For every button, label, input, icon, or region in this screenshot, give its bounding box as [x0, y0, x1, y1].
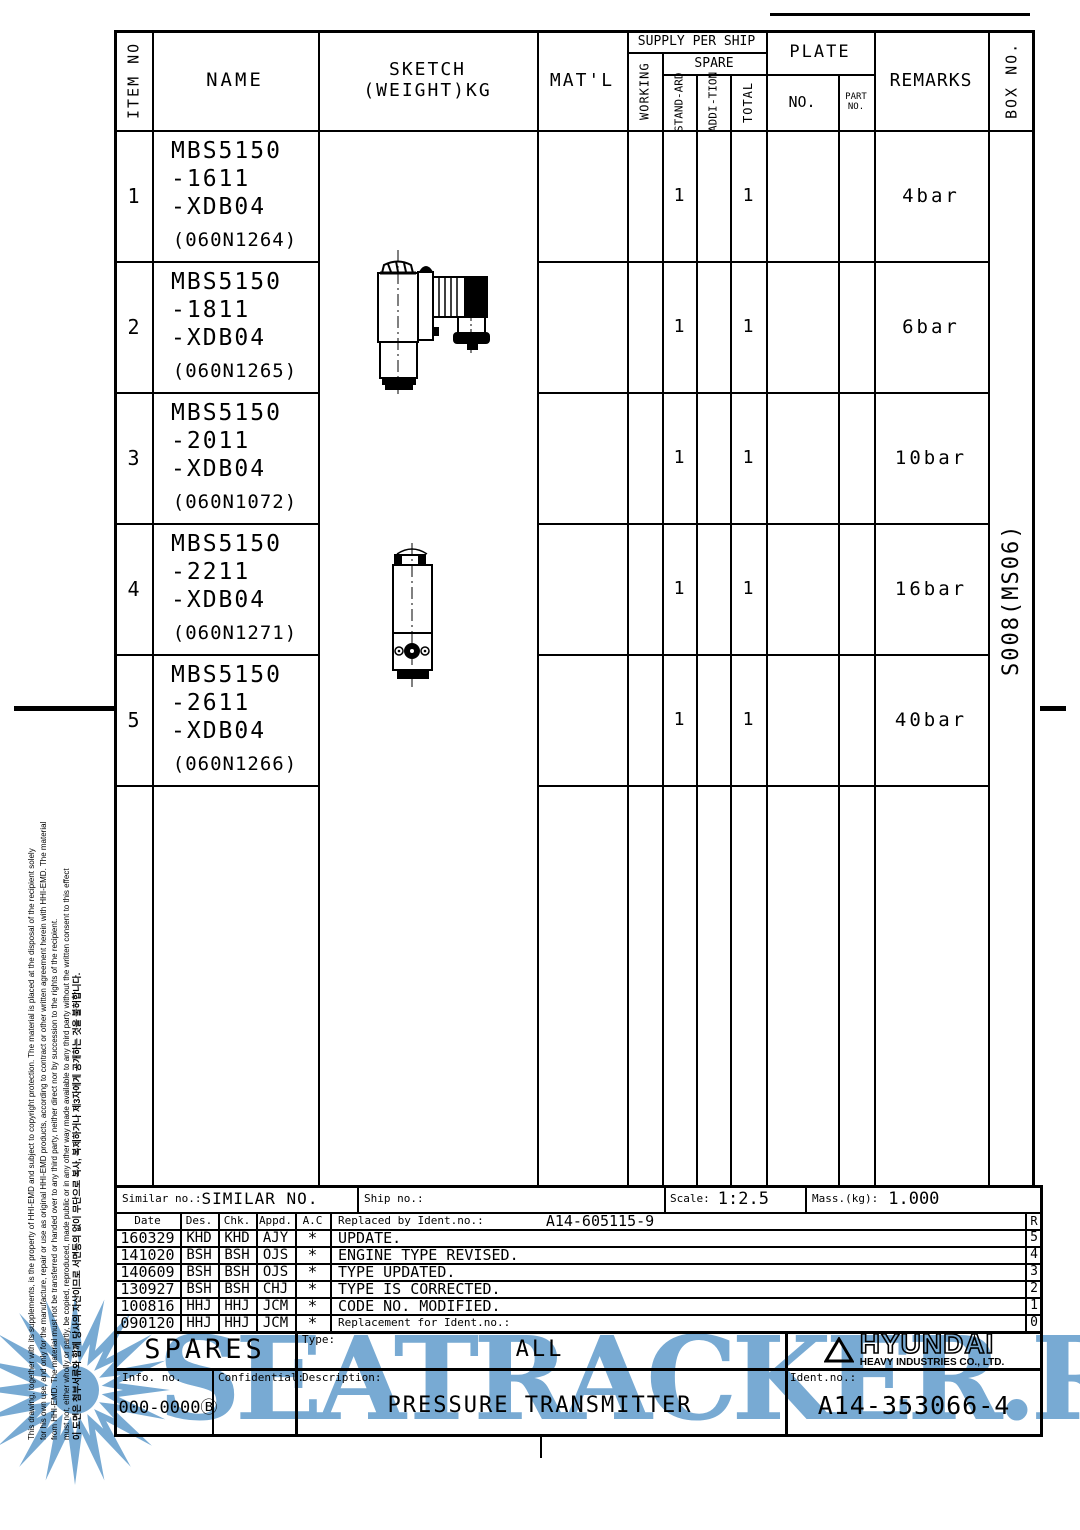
watermark-text: SEATRACKER.RU — [158, 1322, 1080, 1437]
name-line: -2211 — [171, 558, 299, 586]
remarks-value: 4bar — [874, 130, 988, 261]
col-header-working: WORKING — [627, 52, 662, 130]
rev-r: 2 — [1025, 1280, 1043, 1297]
col-header-total: TOTAL — [730, 74, 766, 130]
col-header-spare: SPARE — [662, 52, 766, 74]
item-no: 3 — [115, 392, 152, 523]
similar-no-cell: Similar no.:SIMILAR NO. — [122, 1185, 354, 1212]
name-line: MBS5150 — [171, 137, 299, 165]
grid-line — [537, 30, 539, 1185]
col-header-part-no: PART NO. — [838, 74, 874, 130]
rev-desc: ENGINE TYPE REVISED. — [338, 1246, 1018, 1263]
col-header-addition: ADDI -TION — [696, 74, 730, 130]
mass-value: 1.000 — [888, 1189, 939, 1209]
name-line: MBS5150 — [171, 268, 299, 296]
drawing-sheet: { "table": { "headers": { "item_no": "IT… — [0, 0, 1080, 1466]
addition-line2: -TION — [707, 72, 720, 105]
rev-desc: TYPE UPDATED. — [338, 1263, 1018, 1280]
name-line: -XDB04 — [171, 586, 299, 614]
item-no: 1 — [115, 130, 152, 261]
sketch-header-line1: SKETCH — [389, 59, 466, 80]
col-header-matl: MAT'L — [537, 30, 627, 130]
rev-header-ac: A.C — [295, 1212, 330, 1229]
part-code: (060N1072) — [173, 488, 297, 516]
col-header-plate-no: NO. — [766, 74, 838, 130]
name-line: MBS5150 — [171, 661, 299, 689]
fold-mark-right — [1040, 706, 1066, 711]
grid-line — [838, 74, 840, 1185]
qty-total: 1 — [730, 523, 766, 654]
sketch-header-line2: (WEIGHT)KG — [363, 80, 491, 101]
part-name: MBS5150 -2011 -XDB04 (060N1072) — [152, 392, 318, 523]
remarks-value: 6bar — [874, 261, 988, 392]
rev-desc: UPDATE. — [338, 1229, 1018, 1246]
part-name: MBS5150 -2611 -XDB04 (060N1266) — [152, 654, 318, 785]
rev-header-replaced-label: Replaced by Ident.no.: — [338, 1212, 528, 1229]
grid-line — [696, 74, 698, 1185]
addition-line1: ADDI — [707, 105, 720, 132]
rev-header-chk: Chk. — [218, 1212, 256, 1229]
qty-total: 1 — [730, 654, 766, 785]
rev-desc: TYPE IS CORRECTED. — [338, 1280, 1018, 1297]
rev-header-replaced-value: A14-605115-9 — [510, 1212, 690, 1229]
ship-no-label: Ship no.: — [364, 1192, 424, 1205]
rev-chk: BSH — [218, 1246, 256, 1263]
rev-ac: * — [295, 1229, 330, 1246]
similar-no-label: Similar no.: — [122, 1192, 201, 1205]
col-header-supply-per-ship: SUPPLY PER SHIP — [627, 30, 766, 52]
rev-appd: OJS — [256, 1263, 295, 1280]
qty-standard: 1 — [662, 654, 696, 785]
name-line: -2611 — [171, 689, 299, 717]
col-header-remarks: REMARKS — [874, 30, 988, 130]
name-line: -1611 — [171, 165, 299, 193]
standard-line1: STAND — [673, 99, 686, 132]
part-code: (060N1264) — [173, 226, 297, 254]
col-header-box-no: BOX NO. — [988, 30, 1035, 130]
name-line: -XDB04 — [171, 324, 299, 352]
part-name: MBS5150 -1811 -XDB04 (060N1265) — [152, 261, 318, 392]
scale-label: Scale: — [670, 1192, 710, 1205]
name-line: MBS5150 — [171, 530, 299, 558]
grid-line — [664, 1185, 666, 1212]
rev-appd: CHJ — [256, 1280, 295, 1297]
rev-header-r: R — [1025, 1212, 1043, 1229]
part-code: (060N1265) — [173, 357, 297, 385]
remarks-value: 10bar — [874, 392, 988, 523]
rev-header-appd: Appd. — [256, 1212, 295, 1229]
mass-label: Mass.(kg): — [812, 1192, 878, 1205]
col-header-standard: STAND -ARD — [662, 74, 696, 130]
mass-cell: Mass.(kg):1.000 — [812, 1185, 1037, 1212]
qty-standard: 1 — [662, 523, 696, 654]
grid-line — [766, 30, 768, 1185]
name-line: -XDB04 — [171, 455, 299, 483]
qty-standard: 1 — [662, 261, 696, 392]
part-name: MBS5150 -1611 -XDB04 (060N1264) — [152, 130, 318, 261]
part-name: MBS5150 -2211 -XDB04 (060N1271) — [152, 523, 318, 654]
top-right-rule — [770, 13, 1030, 16]
col-header-sketch: SKETCH (WEIGHT)KG — [318, 30, 537, 130]
rev-chk: KHD — [218, 1229, 256, 1246]
remarks-value: 40bar — [874, 654, 988, 785]
part-code: (060N1266) — [173, 750, 297, 778]
rev-ac: * — [295, 1280, 330, 1297]
qty-total: 1 — [730, 130, 766, 261]
scale-value: 1:2.5 — [718, 1189, 769, 1209]
standard-line2: -ARD — [673, 72, 686, 99]
rev-chk: BSH — [218, 1280, 256, 1297]
col-header-item-no: ITEM NO — [115, 30, 152, 130]
col-header-plate: PLATE — [766, 30, 874, 74]
qty-standard: 1 — [662, 392, 696, 523]
ship-no-cell: Ship no.: — [364, 1185, 564, 1212]
item-no: 5 — [115, 654, 152, 785]
item-no: 4 — [115, 523, 152, 654]
grid-line — [627, 30, 629, 1185]
name-line: -XDB04 — [171, 717, 299, 745]
rev-des: KHD — [180, 1229, 218, 1246]
name-line: MBS5150 — [171, 399, 299, 427]
rev-r: 4 — [1025, 1246, 1043, 1263]
qty-total: 1 — [730, 261, 766, 392]
part-no-line1: PART — [845, 92, 867, 102]
sketch-drawing — [318, 130, 537, 1185]
rev-appd: OJS — [256, 1246, 295, 1263]
qty-standard: 1 — [662, 130, 696, 261]
box-no-value: S008(MS06) — [988, 430, 1035, 770]
part-no-line2: NO. — [848, 102, 864, 112]
name-line: -1811 — [171, 296, 299, 324]
grid-line — [115, 785, 318, 787]
scale-cell: Scale:1:2.5 — [670, 1185, 803, 1212]
rev-r: 3 — [1025, 1263, 1043, 1280]
similar-no-value: SIMILAR NO. — [201, 1189, 318, 1208]
grid-line — [805, 1185, 807, 1212]
rev-date: 160329 — [115, 1229, 180, 1246]
name-line: -XDB04 — [171, 193, 299, 221]
grid-line — [537, 785, 988, 787]
name-line: -2011 — [171, 427, 299, 455]
fold-mark-left — [14, 706, 115, 711]
grid-line — [357, 1185, 359, 1212]
qty-total: 1 — [730, 392, 766, 523]
col-header-name: NAME — [152, 30, 318, 130]
rev-chk: BSH — [218, 1263, 256, 1280]
rev-ac: * — [295, 1246, 330, 1263]
rev-header-date: Date — [115, 1212, 180, 1229]
rev-appd: AJY — [256, 1229, 295, 1246]
rev-ac: * — [295, 1263, 330, 1280]
remarks-value: 16bar — [874, 523, 988, 654]
rev-r: 5 — [1025, 1229, 1043, 1246]
item-no: 2 — [115, 261, 152, 392]
rev-header-des: Des. — [180, 1212, 218, 1229]
part-code: (060N1271) — [173, 619, 297, 647]
